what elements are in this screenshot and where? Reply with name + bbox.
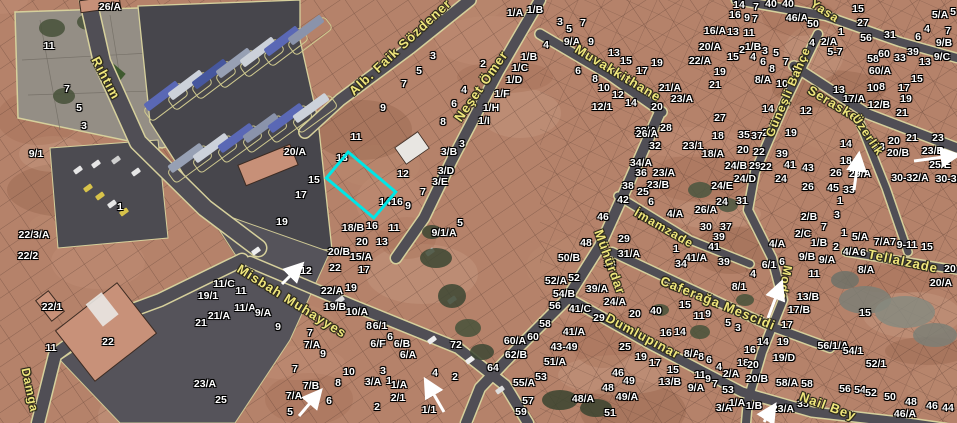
parcel-label: 23 bbox=[932, 133, 944, 144]
parcel-label: 26/A bbox=[636, 129, 658, 140]
parcel-label: 13 bbox=[727, 27, 739, 38]
parcel-label: 15 bbox=[667, 365, 679, 376]
parcel-label: 58/A bbox=[776, 378, 798, 389]
parcel-label: 6 bbox=[760, 57, 766, 68]
parcel-label: 4 bbox=[750, 52, 756, 63]
parcel-label: 41 bbox=[708, 242, 720, 253]
parcel-label: 18/A bbox=[702, 149, 724, 160]
parcel-label: 22/1 bbox=[42, 302, 62, 313]
parcel-label: 13/B bbox=[797, 292, 819, 303]
parcel-label: 18 bbox=[712, 131, 724, 142]
parcel-label: 54/1 bbox=[843, 346, 863, 357]
parcel-label: 1 bbox=[841, 228, 847, 239]
parcel-label: 16 bbox=[391, 197, 403, 208]
parcel-label: 58 bbox=[539, 319, 551, 330]
parcel-label: 48/A bbox=[572, 394, 594, 405]
parcel-label: 25 bbox=[637, 187, 649, 198]
parcel-label: 5 bbox=[76, 103, 82, 114]
parcel-label: 8 bbox=[366, 321, 372, 332]
parcel-label: 39 bbox=[718, 257, 730, 268]
parcel-label: 14 bbox=[840, 139, 852, 150]
parcel-label: 11 bbox=[388, 223, 399, 234]
parcel-label: 41/A bbox=[563, 327, 585, 338]
parcel-label: 20/B bbox=[328, 247, 350, 258]
parcel-label: 19 bbox=[785, 128, 797, 139]
parcel-label: 56 bbox=[839, 384, 851, 395]
parcel-label: 7 bbox=[712, 379, 718, 390]
parcel-label: 1/A bbox=[507, 8, 523, 19]
street-label: Üzerlik bbox=[850, 112, 886, 157]
parcel-label: 53 bbox=[535, 372, 547, 383]
parcel-label: 1/A bbox=[729, 398, 745, 409]
parcel-label: 14 bbox=[625, 98, 637, 109]
parcel-label: 1 bbox=[838, 27, 844, 38]
parcel-label: 9/B bbox=[936, 38, 952, 49]
parcel-label: 12 bbox=[300, 266, 312, 277]
parcel-label: 29 bbox=[749, 161, 761, 172]
parcel-label: 20 bbox=[888, 136, 900, 147]
parcel-label: 5 bbox=[566, 24, 572, 35]
parcel-label: 15 bbox=[727, 52, 739, 63]
parcel-label: 33 bbox=[894, 53, 906, 64]
parcel-label: 2 bbox=[374, 402, 380, 413]
parcel-label: 52/1 bbox=[866, 359, 886, 370]
parcel-label: 20/B bbox=[887, 148, 909, 159]
parcel-label: 34 bbox=[675, 259, 687, 270]
parcel-label: 3/A bbox=[365, 377, 381, 388]
parcel-label: 7 bbox=[821, 222, 827, 233]
parcel-label: 17/B bbox=[788, 305, 810, 316]
parcel-label: 15 bbox=[308, 175, 320, 186]
parcel-label: 5 bbox=[457, 218, 463, 229]
parcel-label: 51 bbox=[604, 408, 616, 419]
parcel-label: 15/A bbox=[350, 252, 372, 263]
parcel-label: 1 bbox=[117, 202, 123, 213]
parcel-label: 1/B bbox=[811, 238, 827, 249]
parcel-label: 35 bbox=[738, 130, 750, 141]
parcel-label: 56 bbox=[549, 301, 561, 312]
parcel-label: 8 bbox=[879, 82, 885, 93]
parcel-label: 7/A bbox=[304, 340, 320, 351]
parcel-label: 2 bbox=[452, 372, 458, 383]
parcel-label: 23/A bbox=[194, 379, 216, 390]
parcel-label: 50/B bbox=[558, 253, 580, 264]
parcel-label: 5/A bbox=[852, 232, 868, 243]
parcel-label: 4 bbox=[750, 269, 756, 280]
parcel-label: 10 bbox=[867, 83, 879, 94]
parcel-label: 7 bbox=[307, 328, 313, 339]
parcel-label: 46/A bbox=[786, 13, 808, 24]
parcel-label: 22/3/A bbox=[19, 230, 50, 241]
parcel-label: 18 bbox=[840, 156, 852, 167]
parcel-label: 11/C bbox=[213, 279, 235, 290]
parcel-label: 58 bbox=[867, 54, 879, 65]
parcel-label: 7 bbox=[753, 2, 759, 13]
parcel-label: 24/D bbox=[734, 174, 756, 185]
parcel-label: 48 bbox=[580, 238, 592, 249]
parcel-label: 17 bbox=[898, 83, 910, 94]
parcel-label: 25 bbox=[619, 342, 631, 353]
parcel-label: 15 bbox=[620, 56, 632, 67]
parcel-label: 11 bbox=[808, 269, 819, 280]
parcel-label: 4 bbox=[924, 24, 930, 35]
parcel-label: 20/B bbox=[746, 374, 768, 385]
parcel-label: 40 bbox=[765, 0, 777, 9]
map-canvas[interactable]: 26/A117539/1122/3/A22/222/1112220/A15171… bbox=[0, 0, 957, 423]
parcel-label: 24 bbox=[716, 197, 728, 208]
parcel-label: 17 bbox=[781, 320, 793, 331]
parcel-label: 6/F bbox=[370, 339, 385, 350]
parcel-label: 12 bbox=[800, 106, 812, 117]
parcel-label: 57 bbox=[522, 396, 534, 407]
parcel-label: 24 bbox=[775, 174, 787, 185]
parcel-label: 31 bbox=[736, 196, 748, 207]
parcel-label: 4 bbox=[432, 368, 438, 379]
parcel-label: 9 bbox=[588, 37, 594, 48]
parcel-label: 9 bbox=[405, 201, 411, 212]
parcel-label: 19/B bbox=[324, 302, 346, 313]
parcel-label: 1 bbox=[673, 244, 679, 255]
parcel-label: 23/A bbox=[772, 404, 794, 415]
parcel-label: 3 bbox=[430, 51, 436, 62]
parcel-label: 43-49 bbox=[551, 342, 578, 353]
parcel-label: 21 bbox=[896, 108, 908, 119]
label-layer: 26/A117539/1122/3/A22/222/1112220/A15171… bbox=[0, 0, 957, 423]
parcel-label: 6 bbox=[860, 248, 866, 259]
street-label: Damga bbox=[19, 367, 40, 414]
parcel-label: 40 bbox=[650, 306, 662, 317]
parcel-label: 5 bbox=[416, 66, 422, 77]
parcel-label: 1/B bbox=[521, 52, 537, 63]
parcel-label: 4 bbox=[543, 40, 549, 51]
parcel-label: 7 bbox=[783, 57, 789, 68]
parcel-label: 22 bbox=[102, 337, 114, 348]
parcel-label: 19 bbox=[714, 67, 726, 78]
parcel-label: 3 bbox=[735, 323, 741, 334]
parcel-label: 11 bbox=[693, 311, 704, 322]
parcel-label: 3/B bbox=[441, 147, 457, 158]
parcel-label: 45 bbox=[827, 183, 839, 194]
parcel-label: 13 bbox=[376, 237, 388, 248]
parcel-label: 11/A bbox=[234, 303, 256, 314]
parcel-label: 11 bbox=[45, 343, 56, 354]
parcel-label: 1/F bbox=[494, 89, 509, 100]
parcel-label: 1/I bbox=[478, 116, 490, 127]
parcel-label: 13/B bbox=[659, 377, 681, 388]
parcel-label: 17 bbox=[358, 265, 370, 276]
parcel-label: 26/A bbox=[695, 205, 717, 216]
parcel-label: 60 bbox=[878, 49, 890, 60]
parcel-label: 3/E bbox=[432, 177, 448, 188]
parcel-label: 9 bbox=[380, 103, 386, 114]
parcel-label: 27 bbox=[857, 18, 869, 29]
parcel-label: 40 bbox=[782, 0, 794, 9]
parcel-label: 13 bbox=[608, 48, 620, 59]
parcel-label: 36 bbox=[635, 168, 647, 179]
parcel-label: 60 bbox=[527, 332, 539, 343]
parcel-label: 9/A bbox=[688, 383, 704, 394]
parcel-label: 22/A bbox=[321, 286, 343, 297]
parcel-label: 33 bbox=[843, 185, 855, 196]
parcel-label: 19/1 bbox=[198, 291, 218, 302]
parcel-label: 10 bbox=[598, 83, 610, 94]
parcel-label: 19 bbox=[900, 94, 912, 105]
parcel-label: 42 bbox=[617, 195, 629, 206]
parcel-label: 1/C bbox=[512, 63, 528, 74]
parcel-label: 3 bbox=[459, 139, 465, 150]
parcel-label: 5 bbox=[287, 407, 293, 418]
parcel-label: 31/A bbox=[618, 249, 640, 260]
parcel-label: 48 bbox=[905, 397, 917, 408]
parcel-label: 7 bbox=[64, 84, 70, 95]
parcel-label: 6 bbox=[326, 396, 332, 407]
parcel-label: 19 bbox=[276, 217, 288, 228]
parcel-label: 15 bbox=[852, 4, 864, 15]
parcel-label: 2/B bbox=[801, 212, 817, 223]
parcel-label: 1/D bbox=[506, 75, 522, 86]
parcel-label: 23/A bbox=[653, 168, 675, 179]
parcel-label: 14 bbox=[757, 337, 769, 348]
parcel-label: 23/B bbox=[647, 180, 669, 191]
parcel-label: 1 bbox=[837, 196, 843, 207]
parcel-label: 32 bbox=[649, 141, 661, 152]
parcel-label: 23/A bbox=[671, 94, 693, 105]
parcel-label: 5/A bbox=[932, 10, 948, 21]
parcel-label: 41/C bbox=[569, 304, 591, 315]
parcel-label: 9/B bbox=[799, 252, 815, 263]
parcel-label: 24/E bbox=[711, 181, 733, 192]
parcel-label: 6/B bbox=[394, 339, 410, 350]
parcel-label: 6 bbox=[387, 332, 393, 343]
parcel-label: 22/A bbox=[689, 56, 711, 67]
parcel-label: 3 bbox=[81, 121, 87, 132]
parcel-label: 54 bbox=[854, 385, 866, 396]
parcel-label: 5 bbox=[950, 7, 956, 18]
street-label: Moda bbox=[776, 265, 794, 302]
parcel-label: 7 bbox=[945, 26, 951, 37]
parcel-label: 43 bbox=[802, 163, 814, 174]
parcel-label: 12/1 bbox=[592, 102, 612, 113]
parcel-label: 8 bbox=[769, 64, 775, 75]
parcel-label: 3/D bbox=[438, 166, 454, 177]
parcel-label: 22 bbox=[329, 263, 341, 274]
parcel-label: 6 bbox=[706, 355, 712, 366]
parcel-label: 7/A bbox=[874, 237, 890, 248]
parcel-label: 39 bbox=[776, 149, 788, 160]
parcel-label: 8/A bbox=[755, 75, 771, 86]
parcel-label: 28 bbox=[660, 123, 672, 134]
parcel-label: 25 bbox=[215, 395, 227, 406]
parcel-label: 54/B bbox=[553, 289, 575, 300]
parcel-label: 12/B bbox=[868, 100, 890, 111]
parcel-label: 60/A bbox=[869, 66, 891, 77]
parcel-label: 26 bbox=[802, 182, 814, 193]
parcel-label: 11 bbox=[43, 41, 54, 52]
parcel-label: 22 bbox=[753, 147, 765, 158]
parcel-label: 8 bbox=[335, 378, 341, 389]
parcel-label: 25/E bbox=[929, 160, 951, 171]
parcel-label: 23/1 bbox=[683, 141, 703, 152]
parcel-label: 72 bbox=[450, 340, 462, 351]
parcel-label: 21 bbox=[709, 80, 721, 91]
street-label: Caferağa Mescidi bbox=[659, 274, 778, 332]
parcel-label: 21/A bbox=[208, 311, 230, 322]
parcel-label: 1/H bbox=[483, 103, 499, 114]
parcel-label: 23/B bbox=[922, 146, 944, 157]
parcel-label: 30-32 bbox=[936, 174, 957, 185]
parcel-label: 19 bbox=[777, 337, 789, 348]
parcel-label: 19 bbox=[635, 352, 647, 363]
parcel-label: 27 bbox=[714, 113, 726, 124]
parcel-label: 4 bbox=[809, 38, 815, 49]
parcel-label: 20/A bbox=[699, 42, 721, 53]
parcel-label: 7 bbox=[292, 364, 298, 375]
parcel-label: 3 bbox=[762, 46, 768, 57]
parcel-label: 8 bbox=[698, 352, 704, 363]
parcel-label: 19 bbox=[345, 283, 357, 294]
parcel-label: 5 bbox=[773, 48, 779, 59]
parcel-label: 5-7 bbox=[827, 47, 842, 58]
parcel-label: 20/A bbox=[284, 147, 306, 158]
parcel-label: 15 bbox=[911, 74, 923, 85]
parcel-label: 9/A bbox=[255, 308, 271, 319]
parcel-label: 52 bbox=[568, 273, 580, 284]
parcel-label: 5 bbox=[725, 318, 731, 329]
parcel-label: 56 bbox=[860, 33, 872, 44]
parcel-label: 60/A bbox=[504, 336, 526, 347]
parcel-label: 8/A bbox=[858, 265, 874, 276]
parcel-label: 3 bbox=[834, 210, 840, 221]
parcel-label: 7 bbox=[420, 187, 426, 198]
parcel-label: 64 bbox=[487, 363, 499, 374]
parcel-label: 6/1 bbox=[762, 260, 777, 271]
parcel-label: 11 bbox=[350, 132, 361, 143]
parcel-label: 16 bbox=[366, 221, 378, 232]
parcel-label: 16/A bbox=[704, 26, 726, 37]
parcel-label: 46/A bbox=[894, 409, 916, 420]
parcel-label: 52/A bbox=[545, 276, 567, 287]
parcel-label: 41/A bbox=[685, 253, 707, 264]
parcel-label: 20 bbox=[747, 360, 759, 371]
parcel-label: 1/B bbox=[746, 401, 762, 412]
parcel-label: 8/1 bbox=[732, 282, 747, 293]
parcel-label: 3 bbox=[380, 366, 386, 377]
parcel-label: 2 bbox=[833, 242, 839, 253]
parcel-label: 8 bbox=[592, 74, 598, 85]
parcel-label: 46 bbox=[597, 212, 609, 223]
parcel-label: 20 bbox=[629, 309, 641, 320]
street-label: İmamzade bbox=[632, 206, 695, 249]
parcel-label: 17 bbox=[295, 190, 307, 201]
parcel-label: 16 bbox=[729, 10, 741, 21]
parcel-label: 9/A bbox=[819, 255, 835, 266]
parcel-label: 20 bbox=[737, 145, 749, 156]
parcel-label: 15 bbox=[679, 300, 691, 311]
parcel-label: 50 bbox=[884, 392, 896, 403]
parcel-label: 53 bbox=[722, 385, 734, 396]
parcel-label: 46 bbox=[612, 368, 624, 379]
parcel-label: 22 bbox=[760, 162, 772, 173]
parcel-label: 10 bbox=[343, 367, 355, 378]
parcel-label: 31 bbox=[884, 30, 896, 41]
parcel-label: 4/A bbox=[667, 209, 683, 220]
parcel-label: 37 bbox=[751, 131, 763, 142]
parcel-label: 26 bbox=[830, 168, 842, 179]
parcel-label: 2/A bbox=[723, 369, 739, 380]
parcel-label: 58 bbox=[801, 379, 813, 390]
parcel-label: 24/B bbox=[725, 161, 747, 172]
parcel-label: 12 bbox=[397, 169, 409, 180]
parcel-label: 9 bbox=[705, 374, 711, 385]
parcel-label: 1/A bbox=[391, 380, 407, 391]
parcel-label: 52 bbox=[865, 388, 877, 399]
parcel-label: 9 bbox=[320, 349, 326, 360]
parcel-label: 8 bbox=[440, 117, 446, 128]
parcel-label: 9/1 bbox=[29, 149, 44, 160]
parcel-label: 21 bbox=[195, 318, 207, 329]
parcel-label: 15 bbox=[859, 308, 871, 319]
parcel-label: 6 bbox=[915, 32, 921, 43]
parcel-label: 20 bbox=[944, 264, 956, 275]
parcel-label: 38 bbox=[622, 181, 634, 192]
parcel-label: 6/1 bbox=[373, 321, 388, 332]
parcel-label: 19 bbox=[651, 58, 663, 69]
parcel-label: 7 bbox=[890, 237, 896, 248]
parcel-label: 16 bbox=[744, 345, 756, 356]
street-label: Rıhtım bbox=[89, 54, 122, 101]
parcel-label: 4 bbox=[716, 362, 722, 373]
parcel-label: 20/A bbox=[930, 278, 952, 289]
parcel-label: 1/1 bbox=[422, 405, 437, 416]
parcel-label: 7/A bbox=[286, 391, 302, 402]
parcel-label: 44 bbox=[942, 403, 954, 414]
parcel-label: 7 bbox=[580, 18, 586, 29]
parcel-label: 51/A bbox=[544, 357, 566, 368]
parcel-label: 11 bbox=[694, 370, 705, 381]
parcel-label: 2/C bbox=[795, 229, 811, 240]
parcel-label: 49/A bbox=[616, 392, 638, 403]
parcel-label: 1/B bbox=[527, 5, 543, 16]
parcel-label: 6 bbox=[575, 66, 581, 77]
parcel-label: 6/A bbox=[400, 350, 416, 361]
parcel-label: 9/1/A bbox=[431, 228, 456, 239]
parcel-label: 22/2 bbox=[18, 251, 38, 262]
parcel-label: 3 bbox=[557, 17, 563, 28]
parcel-label: 9-11 bbox=[897, 240, 917, 251]
parcel-label: 9 bbox=[705, 309, 711, 320]
parcel-label: 62/B bbox=[505, 350, 527, 361]
parcel-label: 19/D bbox=[773, 353, 795, 364]
parcel-label: 24/A bbox=[604, 297, 626, 308]
parcel-label: 17 bbox=[636, 66, 648, 77]
parcel-label: 30-32/A bbox=[891, 173, 928, 184]
parcel-label: 46 bbox=[926, 401, 938, 412]
parcel-label: 9 bbox=[275, 322, 281, 333]
parcel-label: 4/A bbox=[769, 239, 785, 250]
parcel-label: 29/A bbox=[849, 169, 871, 180]
parcel-label: 50 bbox=[807, 19, 819, 30]
parcel-label: 12 bbox=[612, 90, 624, 101]
parcel-label: 7 bbox=[401, 79, 407, 90]
street-label: Alb. Faik Sözdener bbox=[346, 0, 453, 98]
parcel-label: 4/A bbox=[843, 247, 859, 258]
parcel-label: 30 bbox=[700, 222, 712, 233]
parcel-label: 2/1 bbox=[391, 393, 406, 404]
parcel-label: 21 bbox=[906, 133, 918, 144]
parcel-label: 9/C bbox=[934, 52, 950, 63]
parcel-label: 48 bbox=[602, 383, 614, 394]
parcel-label: 10/A bbox=[346, 307, 368, 318]
